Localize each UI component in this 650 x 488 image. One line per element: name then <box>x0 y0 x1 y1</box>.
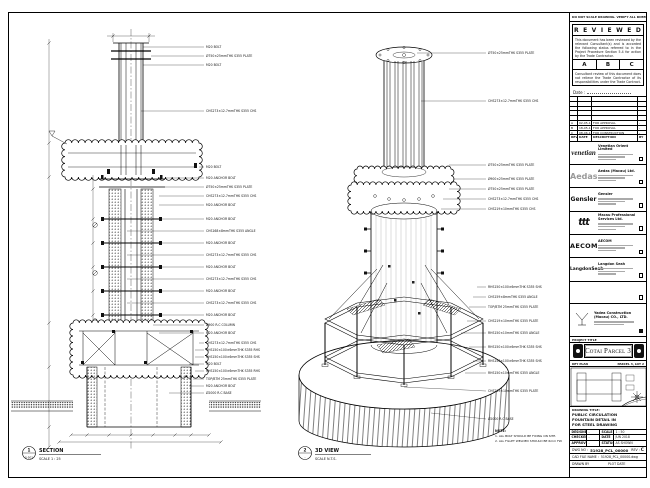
callout-label: M20 ANCHOR BOLT <box>206 313 236 317</box>
company-box-aecom: AECOM AECOM <box>570 235 646 258</box>
key-plan-label: KEY PLAN <box>572 362 588 365</box>
company-box-langdon-seah: LangdonSeah Langdon Seah <box>570 258 646 281</box>
callout-label: CHS159×8mmTHK S355 ANGLE <box>488 295 538 299</box>
key-plan-map <box>570 367 646 407</box>
callout-label: CHS273×12.7mmTHK S355 CHS <box>488 99 538 103</box>
section-basin <box>49 131 202 180</box>
reviewed-stamp-paragraph: This document has been reviewed by the r… <box>573 36 643 59</box>
company-box-empty <box>570 282 646 304</box>
view-number: 2 <box>304 448 307 453</box>
section-callouts: M20 BOLT Ø750×25mmTHK S355 PLATE M20 BOL… <box>205 45 260 395</box>
compass-icon <box>631 391 643 403</box>
dwg-number-row: DWG NO : 51928_PCL_00000 REV : C <box>570 447 646 454</box>
callout-label: CHS219×10mmTHK S355 PLATE <box>488 319 538 323</box>
company-checkbox <box>639 203 644 208</box>
langdon-seah-logo: LangdonSeah <box>570 267 597 272</box>
iso-column <box>348 46 460 348</box>
dwg-number-value: 51928_PCL_00000 <box>590 448 631 453</box>
note-heading: NOTE: <box>495 429 506 433</box>
date-blank-line <box>587 90 631 94</box>
iso-3d-view: Ø750×25mmTHK S355 PLATE CHS273×12.7mmTHK… <box>291 15 573 463</box>
aedas-logo: Aedas <box>570 172 597 181</box>
contractor-box: Yadea Construction (Macau) CO., LTD. <box>570 304 646 337</box>
section-dimension-lines <box>47 39 222 449</box>
callout-label: CHS273×12.7mmTHK S355 CHS <box>206 277 256 281</box>
callout-label: RHS150×10mmTHK S355 ANGLE <box>488 331 540 335</box>
callout-label: CHS273×12.7mmTHK S355 CHS <box>488 197 538 201</box>
company-box-gensler: Gensler Gensler <box>570 188 646 211</box>
view-ref: - <box>304 456 305 460</box>
contractor-mark <box>639 329 643 333</box>
company-box-aedas: Aedas Aedas (Macau) Ltd. <box>570 165 646 188</box>
project-name: Cotai Parcel 3 <box>584 344 633 358</box>
callout-label: Ø750×25mmTHK S355 PLATE <box>488 162 534 167</box>
callout-label: M20 ANCHOR BOLT <box>206 241 236 245</box>
company-name: Aedas (Macau) Ltd. <box>598 170 639 174</box>
callout-label: M20 BOLT <box>206 362 221 366</box>
callout-label: M20 BOLT <box>206 165 221 169</box>
callout-label: M20 ANCHOR BOLT <box>206 217 236 221</box>
company-name: Venetian Orient Limited <box>598 145 639 153</box>
aecom-logo: AECOM <box>570 242 597 250</box>
view-title: SECTION <box>39 448 63 454</box>
callout-label: RHS150×100×6mmTHK S355 RHS <box>206 348 260 352</box>
company-name: Macau Professional Services Ltd. <box>598 214 639 222</box>
title-block: DO NOT SCALE DRAWING. VERIFY ALL DIMENSI… <box>569 13 646 477</box>
revision-table: A02-05-18FOR APPROVAL- B18-05-18FOR APPR… <box>570 97 646 142</box>
contractor-logo <box>574 311 590 329</box>
gensler-logo: Gensler <box>570 196 597 203</box>
callout-label: M20 ANCHOR BOLT <box>206 384 236 388</box>
company-checkbox <box>639 273 644 278</box>
view-scale: SCALE 1 : 25 <box>39 457 61 461</box>
callout-label: M20 ANCHOR BOLT <box>206 203 236 207</box>
reviewed-stamp-disclaimer: Consultant review of this document does … <box>573 70 643 85</box>
status-option-c: C <box>620 60 643 69</box>
callout-label: TOP/BTM 25mmTHK S355 PLATE <box>205 377 256 381</box>
iso-note: NOTE: 1. ALL BOLT SHOULD BE FIXING ON SI… <box>495 429 562 443</box>
callout-label: M20 BOLT <box>206 45 221 49</box>
note-line: 2. ALL FILLET WELDED SHOULD BE 6mm FW. <box>495 439 562 443</box>
callout-label: CHS273×12.7mmTHK S355 CHS <box>206 194 256 198</box>
company-name: AECOM <box>598 240 639 244</box>
rev-value: C <box>641 448 644 453</box>
callout-label: RHS150×100×6mmTHK S355 SHS <box>488 345 542 349</box>
status-option-b: B <box>597 60 621 69</box>
note-line: 1. ALL BOLT SHOULD BE FIXING ON SITE. <box>495 434 556 438</box>
callout-label: Ø900×25mmTHK S355 PLATE <box>488 176 534 181</box>
cad-file-row: CAD FILE NAME : 51928_PCL_00000.dwg <box>570 454 646 461</box>
company-box-venetian: venetian Venetian Orient Limited <box>570 142 646 165</box>
company-checkbox <box>639 157 644 162</box>
callout-label: CHS273×12.7mmTHK S355 CHS <box>206 253 256 257</box>
cad-file-label: CAD FILE NAME : <box>572 455 599 459</box>
section-title-bubble: 1 S-501 SECTION SCALE 1 : 25 <box>23 447 102 462</box>
company-checkbox <box>639 226 644 231</box>
callout-label: RHS150×10mmTHK S355 ANGLE <box>488 371 540 375</box>
status-option-a: A <box>573 60 597 69</box>
company-checkbox <box>639 295 644 300</box>
dwg-number-label: DWG NO : <box>572 448 588 452</box>
plot-row: DRAWN BY PLOT DATE <box>570 461 646 468</box>
callout-label: Ø900 R.C COLUMN <box>206 322 236 327</box>
view-title: 3D VIEW <box>315 448 340 454</box>
date-label: Date : <box>573 90 585 95</box>
callout-label: CHS219×10mmTHK S355 CHS <box>488 207 535 211</box>
callout-label: Ø2000 R.C BASE <box>206 390 232 395</box>
company-name: Gensler <box>598 193 639 197</box>
revision-table-header: REVDATEDESCRIPTIONBY <box>570 135 646 140</box>
company-checkbox <box>639 180 644 185</box>
project-banner: Cotai Parcel 3 <box>570 343 646 361</box>
drawing-sheet: M20 BOLT Ø750×25mmTHK S355 PLATE M20 BOL… <box>8 12 647 478</box>
company-box-mps: ttt Macau Professional Services Ltd. <box>570 212 646 235</box>
callout-label: CHS168×8mmTHK S355 ANGLE <box>206 229 256 233</box>
callout-label: TOP/BTM 25mmTHK S355 PLATE <box>487 305 538 309</box>
callout-label: CHS273×12.7mmTHK S355 CHS <box>206 109 256 113</box>
banner-ornament-icon <box>573 344 583 358</box>
callout-label: RHS150×100×6mmTHK S355 SHS <box>488 359 542 363</box>
rev-label: REV : <box>631 448 640 452</box>
company-checkbox <box>639 250 644 255</box>
venetian-logo: venetian <box>570 149 597 157</box>
drawing-title-box: DRAWING TITLE: PUBLIC CIRCULATION FOUNTA… <box>570 407 646 430</box>
drawn-by-label: DRAWN BY <box>572 462 608 466</box>
plot-date-label: PLOT DATE <box>608 462 644 466</box>
drawing-title-line: FOR STEEL DRAWING <box>572 423 644 428</box>
callout-label: Ø750×25mmTHK S355 PLATE <box>488 50 534 55</box>
callout-label: Ø750×25mmTHK S355 PLATE <box>206 53 252 58</box>
info-table: DESIGNED-SCALE1 : 50 CHECKED-DATEJUN 201… <box>570 430 646 448</box>
contractor-name: (Macau) CO., LTD. <box>594 316 634 320</box>
callout-label: CHS273×12.7mmTHK S355 CHS <box>206 341 256 345</box>
callout-label: M20 ANCHOR BOLT <box>206 176 236 180</box>
key-plan-ref: PARCEL 3, LOT 2 <box>617 362 644 365</box>
callout-label: M20 ANCHOR BOLT <box>206 265 236 269</box>
callout-label: CHS219×10mmTHK S355 PLATE <box>488 389 538 393</box>
section-view: M20 BOLT Ø750×25mmTHK S355 PLATE M20 BOL… <box>9 15 289 463</box>
view-number: 1 <box>28 448 31 453</box>
view-ref: S-501 <box>25 456 33 460</box>
callout-label: M20 ANCHOR BOLT <box>206 331 236 335</box>
reviewed-status-options: A B C <box>573 59 643 70</box>
callout-label: Ø2000 R.C BASE <box>488 416 514 421</box>
company-name: Langdon Seah <box>598 263 639 267</box>
callout-label: RHS150×100×6mmTHK S355 SHS <box>488 285 542 289</box>
reviewed-stamp-title: R E V I E W E D <box>573 25 643 36</box>
callout-label: Ø750×25mmTHK S355 PLATE <box>206 184 252 189</box>
callout-label: RHS150×100×6mmTHK S355 RHS <box>206 369 260 373</box>
stamp-date-row: Date : <box>570 88 646 97</box>
do-not-scale-note: DO NOT SCALE DRAWING. VERIFY ALL DIMENSI… <box>570 13 646 22</box>
reviewed-stamp: R E V I E W E D This document has been r… <box>572 24 644 86</box>
iso-title-bubble: 2 - 3D VIEW SCALE N.T.S. <box>299 447 372 462</box>
callout-label: CHS273×12.7mmTHK S355 CHS <box>206 301 256 305</box>
banner-ornament-icon <box>634 344 644 358</box>
callout-label: Ø750×25mmTHK S355 PLATE <box>488 186 534 191</box>
cad-file-value: 51928_PCL_00000.dwg <box>601 455 644 459</box>
callout-label: RHS150×100×6mmTHK S355 SHS <box>206 355 260 359</box>
callout-label: M20 ANCHOR BOLT <box>206 289 236 293</box>
callout-label: M20 BOLT <box>206 63 221 67</box>
view-scale: SCALE N.T.S. <box>315 457 337 461</box>
mps-logo: ttt <box>570 217 597 228</box>
